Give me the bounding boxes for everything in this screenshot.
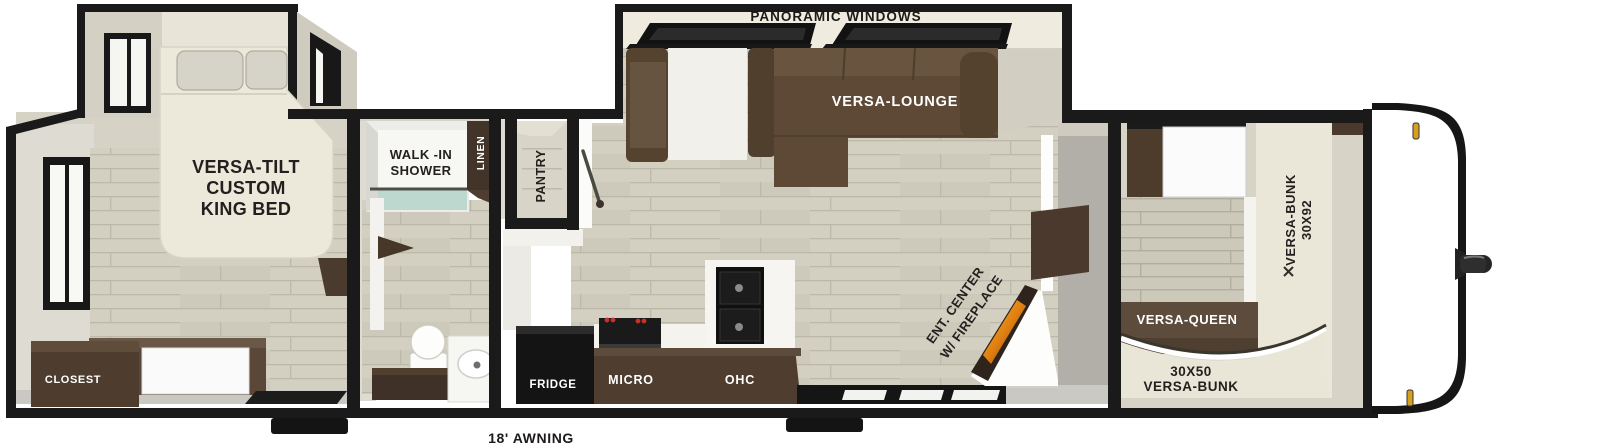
- svg-text:VERSA-TILT: VERSA-TILT: [192, 157, 300, 177]
- svg-text:VERSA-BUNK: VERSA-BUNK: [1143, 379, 1238, 394]
- svg-text:OHC: OHC: [725, 373, 755, 387]
- svg-text:30X50: 30X50: [1170, 364, 1212, 379]
- svg-text:FRIDGE: FRIDGE: [529, 379, 576, 391]
- svg-text:30X92: 30X92: [1299, 200, 1314, 240]
- svg-text:CLOSEST: CLOSEST: [45, 374, 101, 386]
- svg-text:PANTRY: PANTRY: [534, 149, 548, 202]
- svg-text:MICRO: MICRO: [608, 373, 654, 387]
- svg-text:KING BED: KING BED: [201, 199, 291, 219]
- svg-text:18' AWNING: 18' AWNING: [488, 430, 574, 445]
- svg-text:CUSTOM: CUSTOM: [206, 178, 285, 198]
- svg-text:LINEN: LINEN: [475, 136, 487, 171]
- svg-text:VERSA-BUNK: VERSA-BUNK: [1283, 174, 1298, 266]
- svg-text:VERSA-LOUNGE: VERSA-LOUNGE: [832, 94, 958, 110]
- svg-text:WALK -IN: WALK -IN: [390, 147, 452, 162]
- svg-text:VERSA-QUEEN: VERSA-QUEEN: [1137, 312, 1238, 327]
- svg-text:SHOWER: SHOWER: [391, 163, 452, 178]
